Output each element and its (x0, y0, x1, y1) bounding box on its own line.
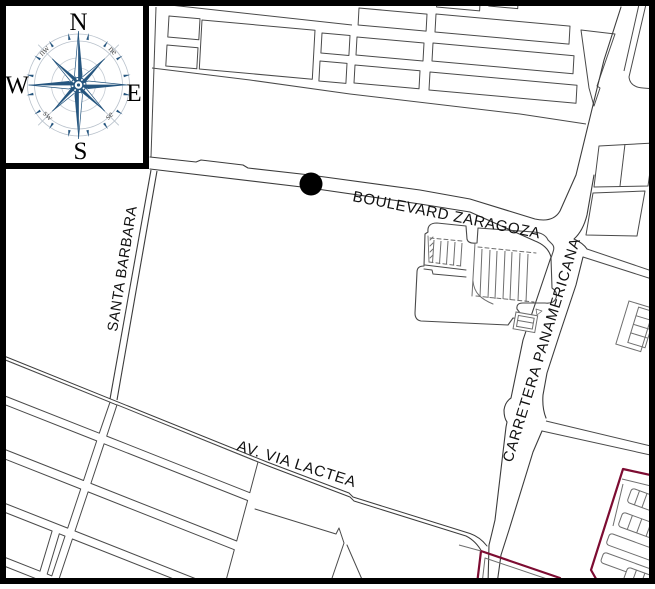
svg-text:W: W (5, 72, 29, 99)
svg-text:S: S (74, 138, 88, 165)
svg-text:E: E (126, 80, 141, 107)
svg-text:N: N (69, 9, 87, 36)
